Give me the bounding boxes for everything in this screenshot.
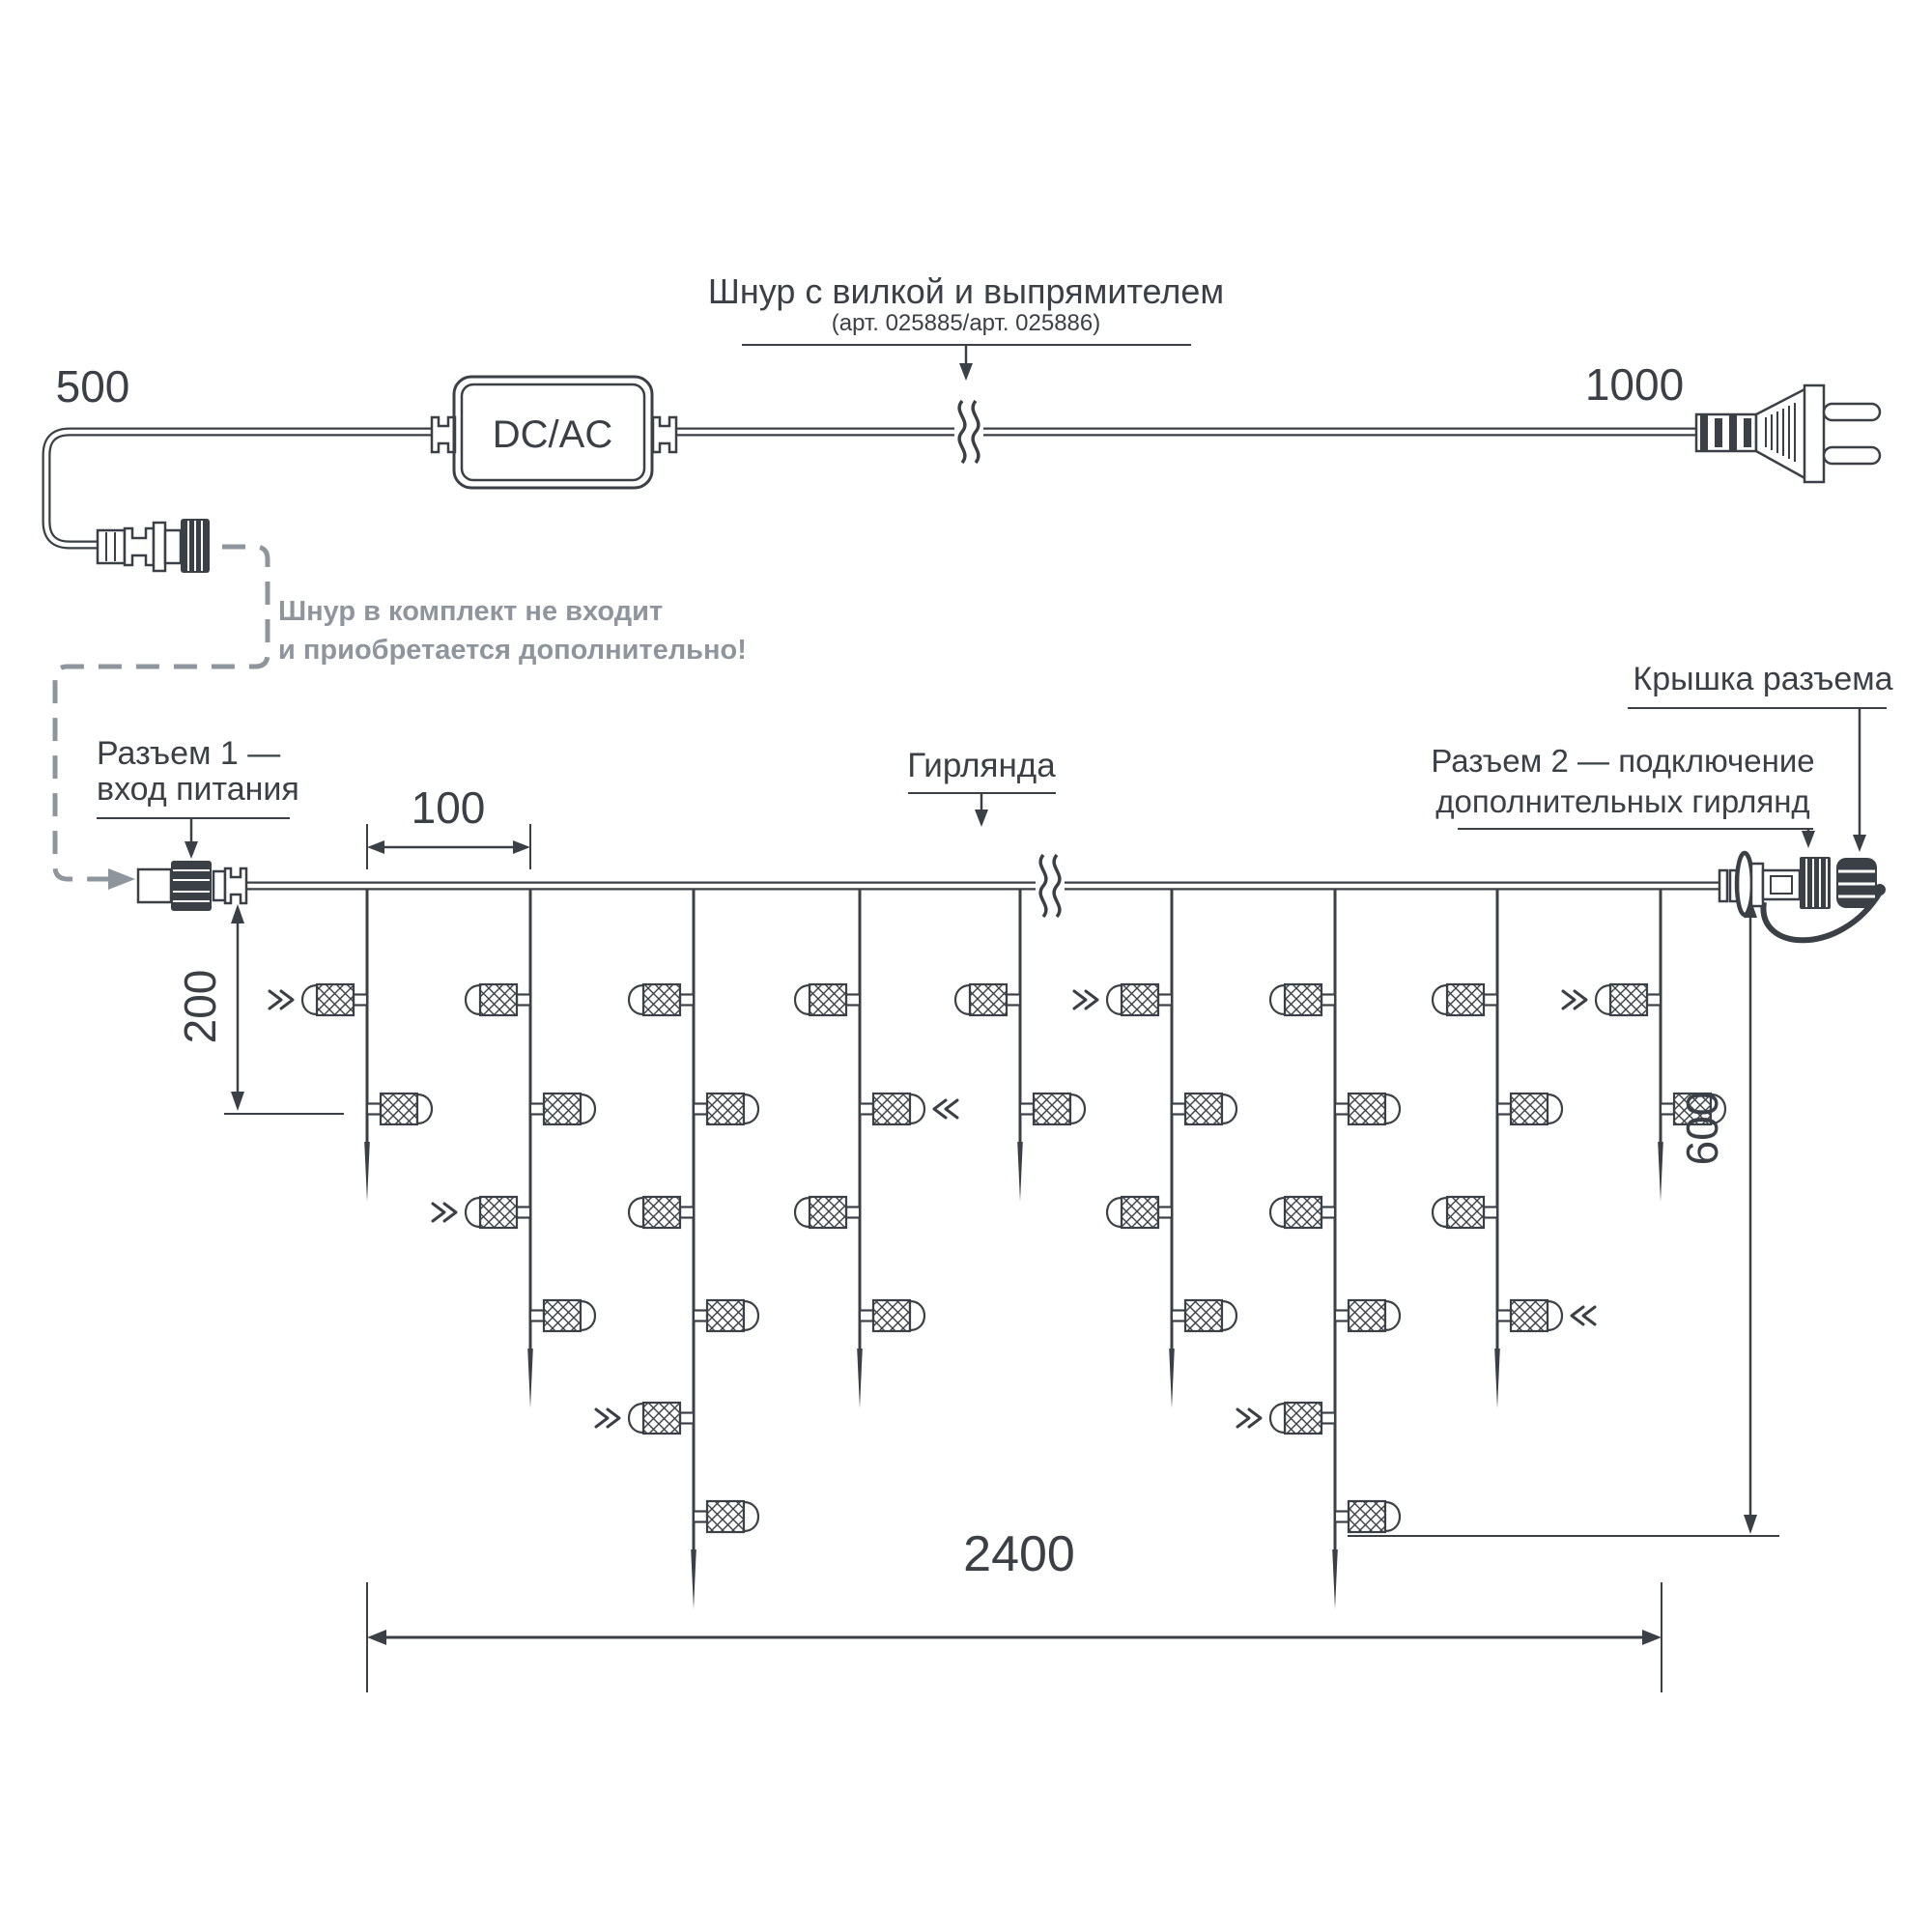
bulb-body — [707, 1300, 744, 1331]
bulb-stub — [680, 1413, 694, 1424]
bulb-direction-marker-icon — [1074, 991, 1097, 1009]
bulb-stub — [1497, 1311, 1511, 1321]
dcac-right-pin-icon — [653, 417, 676, 452]
dimension-100: 100 — [367, 782, 530, 869]
bulb-body — [873, 1300, 910, 1331]
bulb-body — [1034, 1094, 1070, 1124]
bulb-stub — [354, 995, 367, 1006]
connector2-label-line1: Разъем 2 — подключение — [1431, 743, 1814, 779]
garland-callout: Гирлянда — [907, 747, 1056, 827]
bulb-body — [1511, 1094, 1548, 1124]
bulb-stub — [694, 1104, 707, 1115]
bulb-cap — [1548, 1301, 1562, 1330]
bulb-body — [1185, 1094, 1222, 1124]
bulb-stub — [517, 1207, 530, 1218]
bulb-stub — [1497, 1104, 1511, 1115]
garland — [138, 852, 1886, 1609]
cap-label: Крышка разъема — [1633, 661, 1892, 697]
cord-title: Шнур с вилкой и выпрямителем — [708, 271, 1224, 311]
dimension-600: 600 — [1348, 898, 1779, 1536]
bulb-direction-marker-icon — [1572, 1307, 1595, 1324]
dcac-label: DC/AC — [493, 413, 612, 456]
bulb-stub — [860, 1311, 873, 1321]
bulb-body — [1349, 1300, 1385, 1331]
bulb-stub — [1647, 995, 1661, 1006]
bulb-body — [1285, 984, 1321, 1015]
connector2-arrow-icon — [1802, 831, 1815, 848]
bulb-cap — [466, 1198, 480, 1227]
cord-break-icon — [954, 398, 983, 466]
drop-tip — [1169, 1349, 1175, 1408]
not-included-note: Шнур в комплект не входит и приобретаетс… — [55, 547, 747, 890]
cord-callout: Шнур с вилкой и выпрямителем (арт. 02588… — [708, 271, 1224, 381]
bulb-cap — [1596, 985, 1610, 1014]
drop-tip — [364, 1142, 370, 1202]
bulb-cap — [1270, 1198, 1285, 1227]
bulb-body — [480, 984, 517, 1015]
bulb-body — [544, 1094, 581, 1124]
bulb-cap — [795, 1198, 810, 1227]
bulb-cap — [629, 985, 643, 1014]
garland-arrow-icon — [975, 810, 988, 827]
garland-drops — [270, 890, 1725, 1609]
bulb-stub — [1335, 1104, 1349, 1115]
bulb-stub — [1484, 995, 1497, 1006]
bulb-direction-marker-icon — [1237, 1409, 1261, 1427]
bulb-stub — [1172, 1311, 1185, 1321]
bulb-direction-marker-icon — [934, 1100, 957, 1118]
bulb-cap — [1070, 1094, 1085, 1123]
bulb-stub — [530, 1104, 544, 1115]
bulb-cap — [1270, 1404, 1285, 1433]
bulb-body — [970, 984, 1007, 1015]
bulb-cap — [1270, 985, 1285, 1014]
connector1-arrow-icon — [185, 841, 198, 859]
bulb-body — [810, 984, 846, 1015]
drop-tip — [857, 1349, 863, 1408]
bulb-body — [643, 1197, 680, 1228]
connector1-icon — [138, 861, 246, 911]
bulb-stub — [1158, 1207, 1172, 1218]
bulb-stub — [860, 1104, 873, 1115]
bulb-stub — [1321, 995, 1335, 1006]
bulb-body — [1185, 1300, 1222, 1331]
bulb-body — [544, 1300, 581, 1331]
bulb-body — [1447, 984, 1484, 1015]
bulb-body — [707, 1501, 744, 1532]
dim-100-label: 100 — [412, 782, 486, 833]
note-line2: и приобретается дополнительно! — [278, 635, 747, 666]
connector1-callout: Разъем 1 — вход питания — [97, 735, 299, 859]
connector1-label-line2: вход питания — [97, 771, 299, 808]
bulb-stub — [1158, 995, 1172, 1006]
bulb-body — [381, 1094, 417, 1124]
bulb-body — [873, 1094, 910, 1124]
bulb-cap — [1385, 1301, 1400, 1330]
bulb-body — [1122, 984, 1158, 1015]
bulb-stub — [1007, 995, 1020, 1006]
bulb-stub — [680, 995, 694, 1006]
bulb-cap — [1107, 1198, 1122, 1227]
bulb-direction-marker-icon — [270, 991, 293, 1009]
bulb-cap — [629, 1198, 643, 1227]
bulb-body — [1122, 1197, 1158, 1228]
dim-2400-label: 2400 — [963, 1526, 1075, 1582]
dim-1000-label: 1000 — [1585, 359, 1684, 410]
bulb-stub — [846, 1207, 860, 1218]
bulb-stub — [1321, 1413, 1335, 1424]
bulb-cap — [1107, 985, 1122, 1014]
bulb-stub — [846, 995, 860, 1006]
bulb-cap — [1385, 1094, 1400, 1123]
bulb-cap — [629, 1404, 643, 1433]
bulb-stub — [517, 995, 530, 1006]
drop-tip — [527, 1349, 533, 1408]
bulb-stub — [530, 1311, 544, 1321]
bulb-direction-marker-icon — [433, 1204, 456, 1221]
bulb-body — [1610, 984, 1647, 1015]
dim-200-label: 200 — [175, 970, 225, 1044]
bulb-direction-marker-icon — [1563, 991, 1586, 1009]
bulb-cap — [1385, 1502, 1400, 1531]
bulb-stub — [680, 1207, 694, 1218]
note-line1: Шнур в комплект не входит — [278, 596, 663, 627]
dimension-annotations: 100 200 600 2400 — [175, 782, 1779, 1692]
garland-break-icon — [1036, 852, 1065, 920]
drop-tip — [1494, 1349, 1500, 1408]
power-plug-icon — [1696, 385, 1880, 482]
garland-callouts: Разъем 1 — вход питания Гирлянда Крышка … — [97, 661, 1893, 859]
connector1-label-line1: Разъем 1 — — [97, 735, 280, 772]
bulb-body — [643, 984, 680, 1015]
bulb-stub — [1335, 1311, 1349, 1321]
bulb-cap — [1222, 1094, 1236, 1123]
bulb-body — [480, 1197, 517, 1228]
bulb-stub — [694, 1311, 707, 1321]
garland-label: Гирлянда — [907, 747, 1056, 784]
dim-500-label: 500 — [56, 361, 130, 412]
drop-tip — [1017, 1142, 1023, 1202]
bulb-cap — [955, 985, 970, 1014]
bulb-stub — [1335, 1512, 1349, 1522]
bulb-cap — [744, 1301, 758, 1330]
drop-tip — [691, 1549, 696, 1609]
bulb-cap — [744, 1502, 758, 1531]
bulb-stub — [1661, 1104, 1674, 1115]
cap-arrow-icon — [1853, 835, 1866, 852]
bulb-body — [643, 1403, 680, 1434]
bulb-stub — [367, 1104, 381, 1115]
bulb-direction-marker-icon — [596, 1409, 619, 1427]
connector2-label-line2: дополнительных гирлянд — [1435, 783, 1809, 819]
bulb-cap — [910, 1301, 924, 1330]
bulb-cap — [466, 985, 480, 1014]
bulb-cap — [1433, 985, 1447, 1014]
bulb-cap — [795, 985, 810, 1014]
dimension-2400: 2400 — [367, 1526, 1662, 1692]
bulb-body — [1285, 1197, 1321, 1228]
bulb-body — [1349, 1501, 1385, 1532]
cord-subtitle: (арт. 025885/арт. 025886) — [832, 310, 1101, 336]
bulb-cap — [581, 1094, 595, 1123]
bulb-cap — [910, 1094, 924, 1123]
dcac-left-pin-icon — [432, 417, 455, 452]
connector2-icon — [1719, 853, 1886, 940]
bulb-cap — [1548, 1094, 1562, 1123]
dashed-arrow-icon — [108, 868, 135, 890]
cord-callout-arrow-icon — [959, 363, 973, 381]
bulb-body — [707, 1094, 744, 1124]
bulb-body — [1447, 1197, 1484, 1228]
drop-tip — [1332, 1549, 1338, 1609]
bulb-stub — [1484, 1207, 1497, 1218]
dim-600-label: 600 — [1677, 1092, 1727, 1166]
bulb-cap — [1222, 1301, 1236, 1330]
bulb-stub — [1172, 1104, 1185, 1115]
cord-wire-left — [46, 432, 444, 545]
bulb-body — [1285, 1403, 1321, 1434]
connector-cap-icon — [1836, 858, 1877, 908]
bulb-cap — [302, 985, 317, 1014]
icicle-garland-diagram: DC/AC 500 1000 Шнур с вилкой и выпрямите… — [0, 0, 1932, 1932]
dcac-converter: DC/AC — [432, 377, 676, 488]
bulb-cap — [581, 1301, 595, 1330]
connector2-callout: Разъем 2 — подключение дополнительных ги… — [1431, 743, 1815, 848]
bulb-cap — [417, 1094, 432, 1123]
bulb-stub — [1321, 1207, 1335, 1218]
bulb-cap — [744, 1094, 758, 1123]
drop-tip — [1658, 1142, 1663, 1202]
bulb-cap — [1433, 1198, 1447, 1227]
bulb-stub — [1020, 1104, 1034, 1115]
bulb-body — [810, 1197, 846, 1228]
bulb-body — [317, 984, 354, 1015]
bulb-stub — [694, 1512, 707, 1522]
bulb-body — [1511, 1300, 1548, 1331]
bulb-body — [1349, 1094, 1385, 1124]
dashed-connection-line — [55, 547, 268, 879]
power-cord: DC/AC 500 1000 Шнур с вилкой и выпрямите… — [46, 271, 1880, 573]
cord-connector-icon — [98, 519, 210, 573]
